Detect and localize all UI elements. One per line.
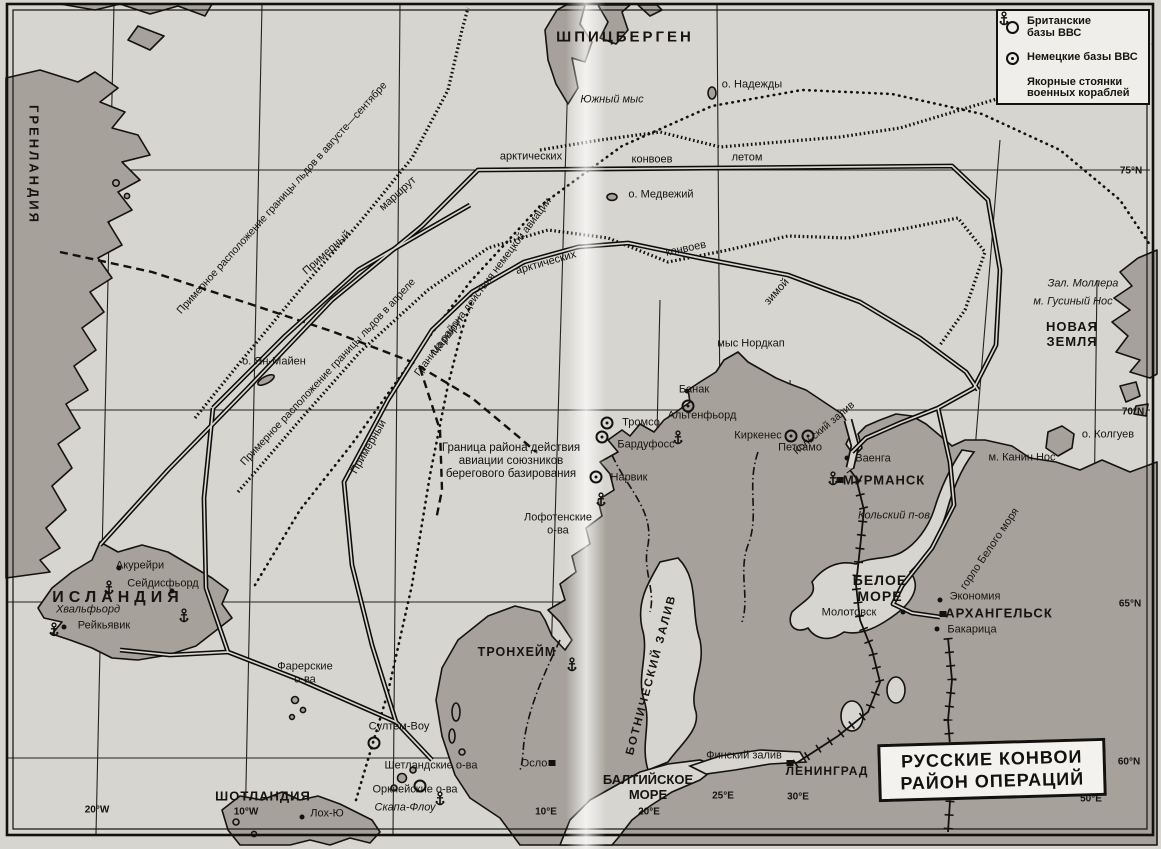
legend-german-bases-label: Немецкие базы ВВС: [1027, 52, 1138, 64]
graticule-lat-75n: 75°N: [1120, 166, 1142, 177]
legend-british-bases: Британские базы ВВС: [1004, 16, 1144, 39]
map-canvas: [0, 0, 1161, 849]
graticule-lon-20e: 20°E: [638, 807, 660, 818]
convoy-map: ГРЕНЛАНДИЯШПИЦБЕРГЕНИСЛАНДИЯНОВАЯ ЗЕМЛЯБ…: [0, 0, 1161, 849]
graticule-lon-25e: 25°E: [712, 791, 734, 802]
legend-anchorages-label: Якорные стоянки военных кораблей: [1027, 77, 1129, 100]
map-legend: Британские базы ВВСНемецкие базы ВВСЯкор…: [996, 9, 1150, 105]
graticule-lon-30e: 30°E: [787, 792, 809, 803]
graticule-lon-10e: 10°E: [535, 807, 557, 818]
map-title-box: РУССКИЕ КОНВОИ РАЙОН ОПЕРАЦИЙ: [877, 738, 1107, 802]
legend-german-bases: Немецкие базы ВВС: [1004, 52, 1144, 65]
graticule-lon-10w: 10°W: [234, 807, 259, 818]
scan-fold: [566, 0, 606, 849]
graticule-lat-70n: 70°N: [1122, 407, 1144, 418]
graticule-lat-60n: 60°N: [1118, 757, 1140, 768]
legend-anchorages: Якорные стоянки военных кораблей: [1004, 77, 1144, 100]
german-base-icon: [1004, 52, 1020, 65]
island-bear: [607, 194, 617, 201]
map-title-line2: РАЙОН ОПЕРАЦИЙ: [900, 767, 1084, 795]
legend-british-bases-label: Британские базы ВВС: [1027, 16, 1091, 39]
island-hope: [708, 87, 716, 99]
graticule-lon-20w: 20°W: [85, 805, 110, 816]
lake-onega: [887, 677, 905, 703]
graticule-lat-65n: 65°N: [1119, 599, 1141, 610]
